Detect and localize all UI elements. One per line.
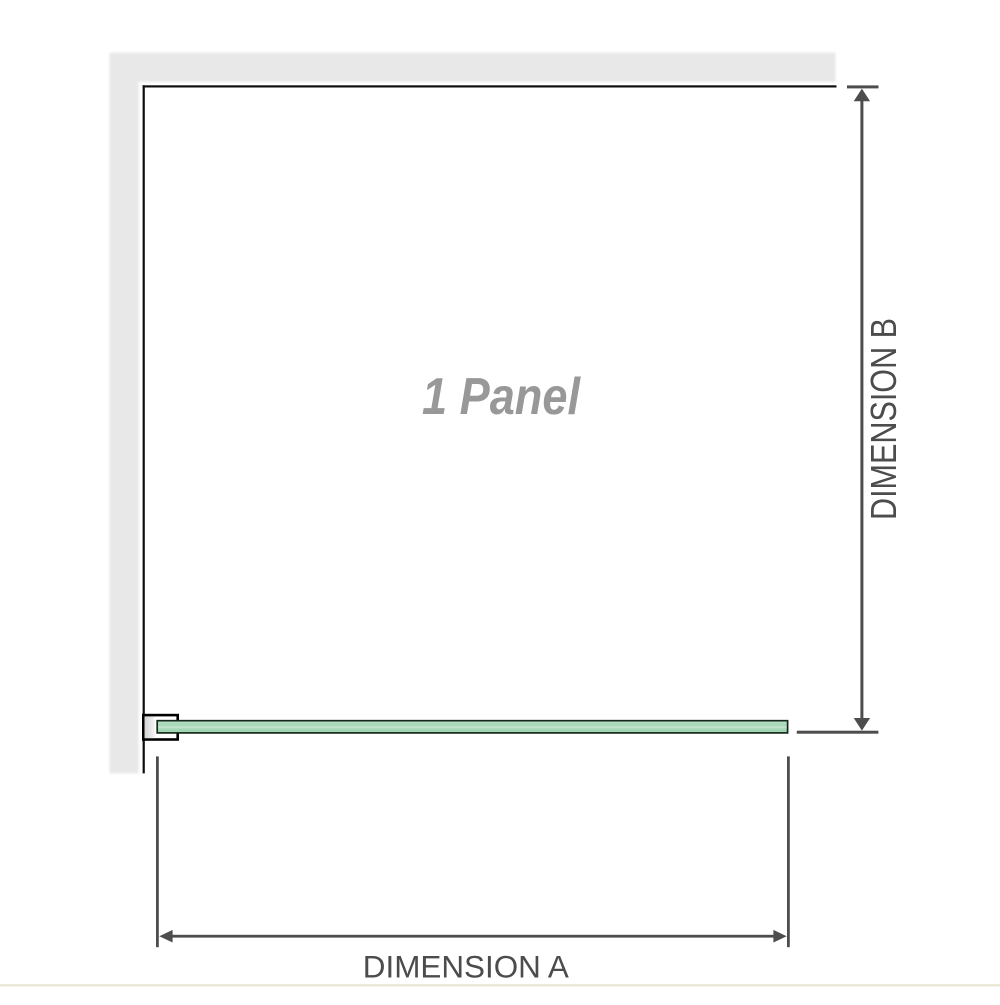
svg-text:DIMENSION A: DIMENSION A (363, 948, 569, 984)
svg-text:1 Panel: 1 Panel (422, 368, 581, 426)
svg-text:DIMENSION B: DIMENSION B (863, 318, 904, 520)
